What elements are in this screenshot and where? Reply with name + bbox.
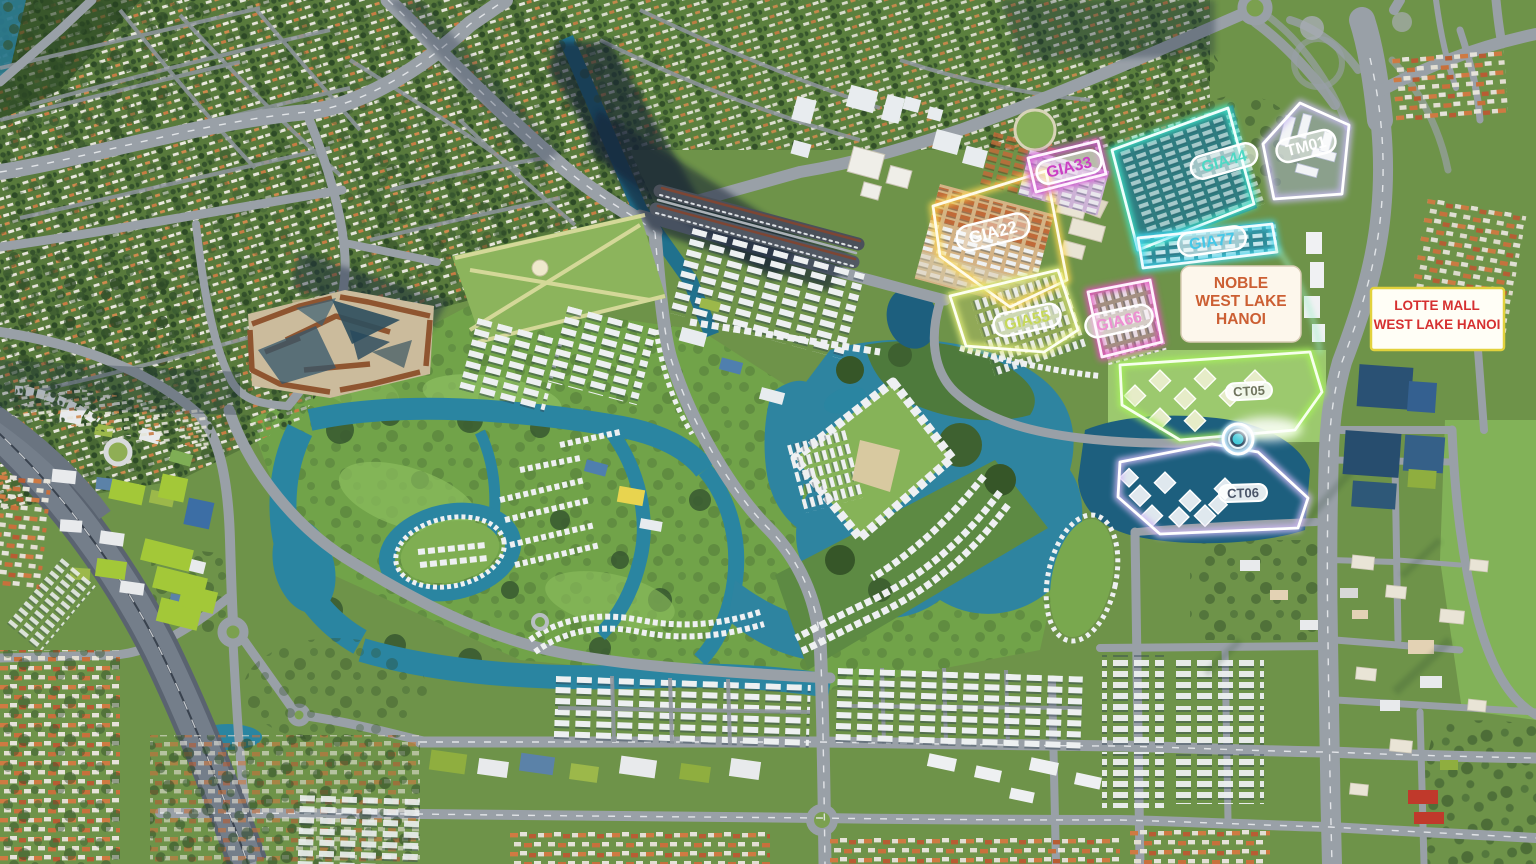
svg-text:WEST LAKE HANOI: WEST LAKE HANOI — [1374, 317, 1501, 332]
svg-text:CT05: CT05 — [1233, 383, 1266, 400]
svg-text:NOBLE: NOBLE — [1214, 275, 1268, 292]
svg-text:HANOI: HANOI — [1216, 311, 1266, 328]
svg-text:LOTTE MALL: LOTTE MALL — [1394, 298, 1479, 313]
svg-text:WEST LAKE: WEST LAKE — [1195, 293, 1286, 310]
svg-text:CT06: CT06 — [1227, 485, 1259, 501]
